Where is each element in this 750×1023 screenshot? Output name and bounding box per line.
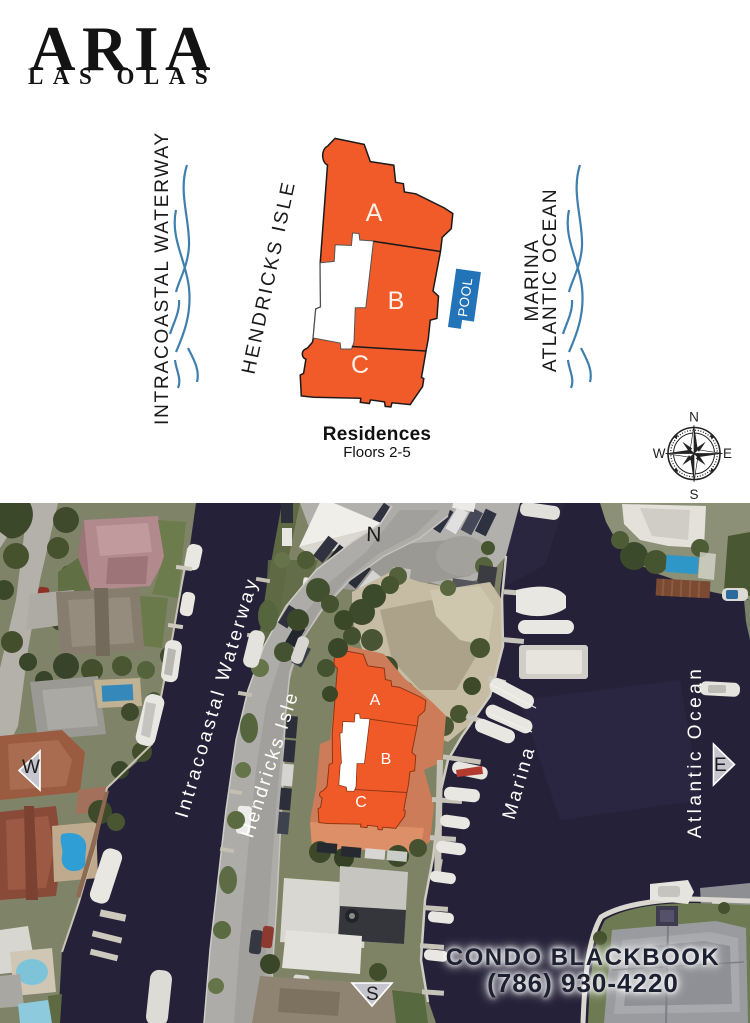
- svg-text:A: A: [366, 199, 383, 227]
- svg-text:C: C: [355, 794, 367, 811]
- svg-text:A: A: [370, 692, 381, 709]
- svg-text:Residences: Residences: [323, 424, 432, 445]
- svg-text:C: C: [351, 351, 369, 379]
- svg-text:S: S: [366, 984, 379, 1005]
- svg-text:HENDRICKS ISLE: HENDRICKS ISLE: [238, 178, 301, 376]
- svg-text:W: W: [22, 757, 40, 778]
- svg-text:E: E: [714, 755, 727, 776]
- svg-text:ATLANTIC OCEAN: ATLANTIC OCEAN: [540, 188, 561, 372]
- svg-text:B: B: [381, 751, 392, 768]
- svg-text:Atlantic Ocean: Atlantic Ocean: [685, 666, 706, 839]
- svg-text:N: N: [689, 410, 699, 425]
- svg-text:INTRACOASTAL WATERWAY: INTRACOASTAL WATERWAY: [152, 131, 173, 425]
- svg-text:S: S: [689, 487, 698, 502]
- svg-text:E: E: [723, 446, 732, 461]
- svg-text:Floors 2-5: Floors 2-5: [343, 444, 411, 461]
- svg-text:N: N: [366, 523, 382, 547]
- svg-text:W: W: [653, 446, 666, 461]
- svg-text:B: B: [388, 287, 405, 315]
